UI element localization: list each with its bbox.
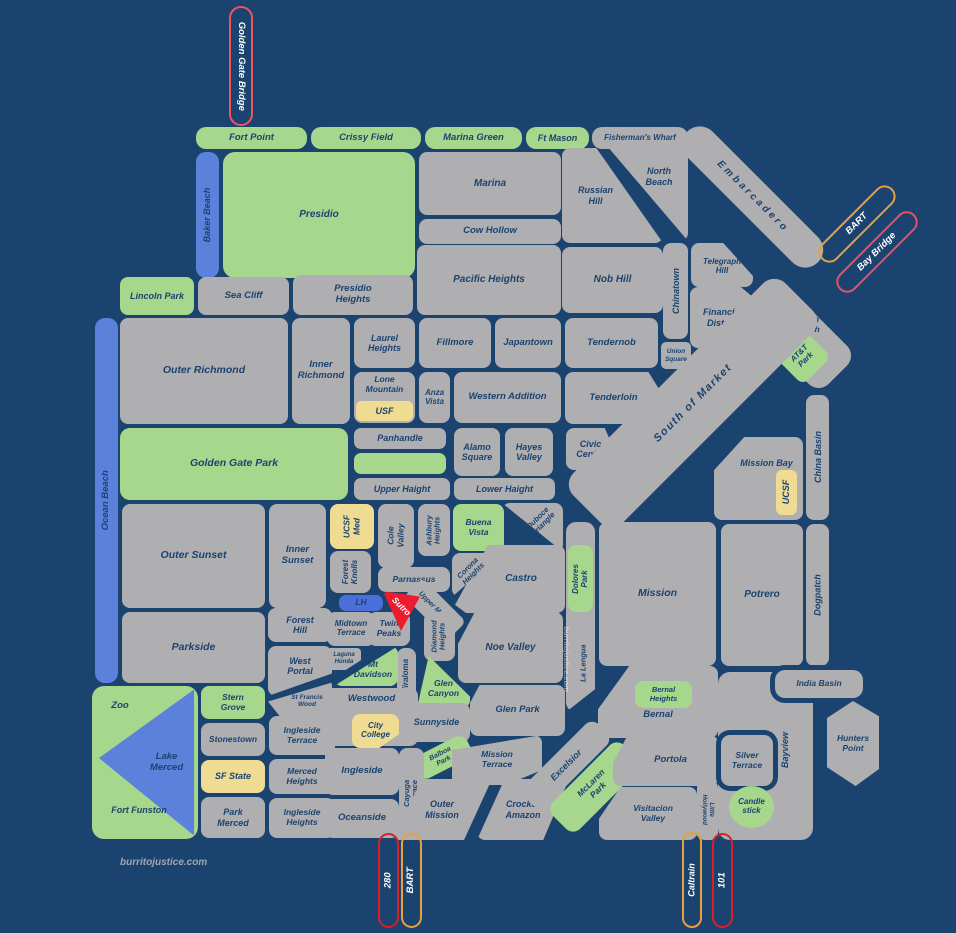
- region-presidio: Presidio: [223, 152, 415, 278]
- region-bernal-heights: Bernal Heights: [635, 681, 692, 708]
- region-cole-valley: Cole Valley: [378, 504, 414, 568]
- region-fillmore: Fillmore: [419, 318, 491, 368]
- region-silver-terrace: Silver Terrace: [721, 735, 773, 786]
- region-outer-richmond: Outer Richmond: [120, 318, 288, 424]
- region-cow-hollow: Cow Hollow: [419, 219, 561, 244]
- region-lower-haight: Lower Haight: [454, 478, 555, 500]
- region-laguna-honda-lh: LH: [339, 595, 383, 611]
- region-stonestown: Stonestown: [201, 723, 265, 756]
- region-diamond-heights: Diamond Heights: [424, 612, 455, 661]
- region-pacific-heights: Pacific Heights: [417, 245, 561, 315]
- region-dogpatch: Dogpatch: [806, 524, 829, 666]
- region-tendernob: Tendernob: [565, 318, 658, 368]
- region-hunters-point: Hunters Point: [827, 701, 879, 786]
- region-sea-cliff: Sea Cliff: [198, 277, 289, 315]
- region-chinatown: Chinatown: [663, 243, 688, 339]
- region-inner-richmond: Inner Richmond: [292, 318, 350, 424]
- region-anza-vista: Anza Vista: [419, 372, 450, 423]
- region-marina-green: Marina Green: [425, 127, 522, 149]
- region-ingleside: Ingleside: [325, 748, 399, 795]
- region-upper-haight: Upper Haight: [354, 478, 450, 500]
- region-ucsf-med: UCSF Med: [330, 504, 374, 549]
- region-zoo-label: Zoo: [98, 696, 142, 716]
- region-buena-vista: Buena Vista: [453, 504, 504, 551]
- region-baker-beach: Baker Beach: [196, 152, 219, 278]
- region-crissy-field: Crissy Field: [311, 127, 421, 149]
- region-ft-mason: Ft Mason: [526, 127, 589, 149]
- region-portola: Portola: [613, 735, 718, 786]
- region-china-basin: China Basin: [806, 395, 829, 520]
- region-panhandle: Panhandle: [354, 428, 446, 449]
- region-ocean-beach: Ocean Beach: [95, 318, 118, 683]
- region-fort-point: Fort Point: [196, 127, 307, 149]
- region-hayes-valley: Hayes Valley: [505, 428, 553, 476]
- sf-neighborhood-map: Ocean Beach Baker Beach Fort Point Criss…: [0, 0, 956, 933]
- region-laguna-honda: Laguna Honda: [327, 648, 361, 670]
- region-mission: Mission: [599, 522, 716, 666]
- region-forest-hill: Forest Hill: [268, 608, 332, 642]
- region-japantown: Japantown: [495, 318, 561, 368]
- region-telegraph-hill: Telegraph Hill: [691, 243, 753, 287]
- region-lincoln-park: Lincoln Park: [120, 277, 194, 315]
- transit-bart-south: BART: [401, 833, 422, 928]
- map-credit: burritojustice.com: [120, 857, 207, 868]
- region-presidio-heights: Presidio Heights: [293, 275, 413, 315]
- region-fort-funston-label: Fort Funston: [94, 800, 184, 820]
- region-nob-hill: Nob Hill: [562, 247, 663, 313]
- region-india-basin: India Basin: [775, 670, 863, 698]
- transit-280-freeway: 280: [378, 833, 399, 928]
- region-panhandle-park: [354, 453, 446, 474]
- region-ucsf-mission-bay: UCSF: [776, 470, 797, 515]
- region-forest-knolls: Forest Knolls: [330, 551, 371, 593]
- transit-caltrain: Caltrain: [682, 832, 702, 928]
- transit-golden-gate-bridge: Golden Gate Bridge: [229, 6, 253, 126]
- region-bayview-label: Bayview: [775, 718, 795, 782]
- region-outer-sunset: Outer Sunset: [122, 504, 265, 608]
- region-la-lengua: La Lengua: [574, 628, 594, 698]
- region-little-hollywood: Little Hollywood: [697, 780, 718, 840]
- region-laurel-heights: Laurel Heights: [354, 318, 415, 368]
- region-sf-state: SF State: [201, 760, 265, 793]
- region-dolores-park: Dolores Park: [568, 545, 593, 612]
- region-glen-park: Glen Park: [470, 685, 565, 736]
- region-golden-gate-park: Golden Gate Park: [120, 428, 348, 500]
- region-marina: Marina: [419, 152, 561, 215]
- region-usf: USF: [356, 401, 413, 421]
- region-western-addition: Western Addition: [454, 372, 561, 423]
- region-ashbury-heights: Ashbury Heights: [418, 504, 450, 556]
- region-candlestick: Candle stick: [729, 786, 774, 828]
- region-alamo-square: Alamo Square: [454, 428, 500, 476]
- region-potrero: Potrero: [721, 524, 803, 666]
- region-fishermans-wharf: Fisherman's Wharf: [592, 127, 688, 149]
- region-noe-valley: Noe Valley: [458, 612, 563, 683]
- region-duboce-triangle: Duboce Triangle: [502, 503, 563, 552]
- region-parkside: Parkside: [122, 612, 265, 683]
- transit-101-freeway: 101: [712, 833, 733, 928]
- region-inner-sunset: Inner Sunset: [269, 504, 326, 608]
- region-stern-grove: Stern Grove: [201, 686, 265, 719]
- region-park-merced: Park Merced: [201, 797, 265, 838]
